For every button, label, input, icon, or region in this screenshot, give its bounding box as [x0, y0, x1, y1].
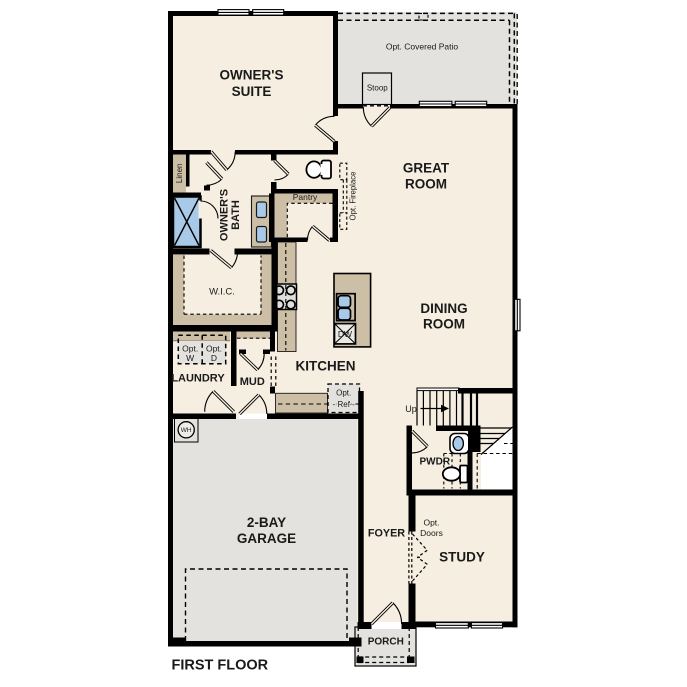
svg-text:DINING: DINING — [420, 301, 467, 316]
svg-text:PWDR: PWDR — [420, 457, 451, 468]
svg-text:LAUNDRY: LAUNDRY — [171, 373, 225, 385]
svg-text:GREAT: GREAT — [403, 161, 450, 176]
svg-text:DW: DW — [338, 329, 352, 339]
svg-text:Opt.: Opt. — [423, 518, 439, 528]
svg-text:Opt.: Opt. — [182, 343, 198, 353]
svg-text:Opt.: Opt. — [336, 388, 351, 397]
svg-text:Opt. Covered Patio: Opt. Covered Patio — [386, 42, 459, 52]
svg-text:Stoop: Stoop — [367, 83, 388, 92]
svg-text:MUD: MUD — [240, 376, 265, 388]
svg-text:W.I.C.: W.I.C. — [209, 286, 235, 297]
svg-text:STUDY: STUDY — [439, 549, 485, 564]
svg-text:ROOM: ROOM — [423, 317, 465, 332]
svg-text:- Ref -: - Ref - — [333, 400, 356, 409]
svg-text:W: W — [186, 353, 194, 363]
svg-text:PORCH: PORCH — [368, 637, 404, 648]
svg-text:SUITE: SUITE — [232, 84, 272, 99]
svg-text:FOYER: FOYER — [368, 527, 405, 539]
svg-text:WH: WH — [181, 427, 192, 434]
svg-text:Opt. Fireplace: Opt. Fireplace — [349, 172, 358, 221]
svg-text:2-BAY: 2-BAY — [247, 515, 286, 530]
svg-text:Up: Up — [405, 404, 417, 414]
svg-text:Opt.: Opt. — [206, 343, 222, 353]
svg-text:FIRST FLOOR: FIRST FLOOR — [172, 657, 269, 673]
svg-text:Linen: Linen — [175, 164, 184, 184]
svg-text:OWNER'S: OWNER'S — [220, 67, 284, 82]
svg-text:KITCHEN: KITCHEN — [296, 358, 356, 373]
svg-text:GARAGE: GARAGE — [237, 531, 296, 546]
svg-text:Pantry: Pantry — [293, 192, 318, 202]
svg-text:D: D — [211, 353, 217, 363]
svg-text:ROOM: ROOM — [405, 176, 447, 191]
svg-text:Doors: Doors — [420, 528, 443, 538]
